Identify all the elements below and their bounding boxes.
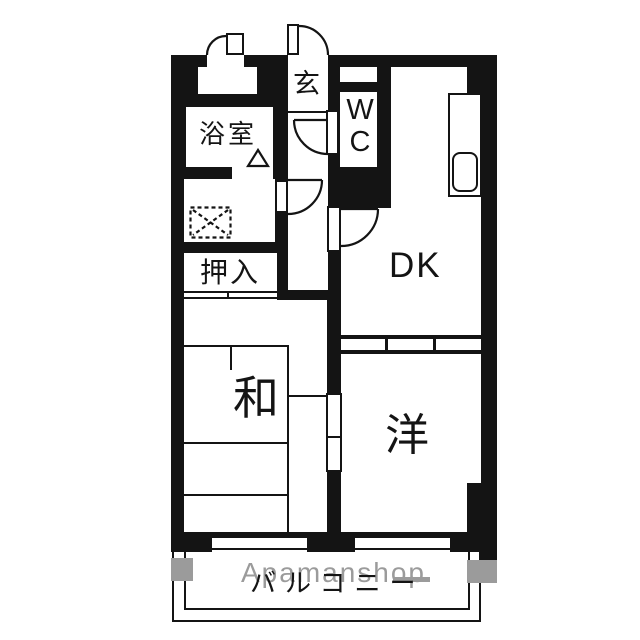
wall-top-right-corner	[467, 55, 497, 95]
room-washroom	[184, 179, 275, 242]
label-balcony: バルコニー	[250, 570, 424, 596]
tatami-line-h4	[289, 395, 327, 397]
sliding-partition-dk-western	[341, 335, 481, 354]
label-western-room: 洋	[385, 414, 429, 458]
label-dining-kitchen: DK	[389, 248, 442, 283]
sliding-partition-tick-2	[433, 335, 436, 354]
kitchen-sink	[452, 152, 478, 192]
wall-left-lower	[171, 300, 184, 552]
closet-fusuma-tick	[227, 291, 229, 299]
tatami-line-h3	[184, 494, 289, 496]
washroom-door-panel	[275, 180, 288, 213]
entrance-door-panel	[287, 24, 299, 55]
entrance-door-gap	[207, 55, 244, 67]
entrance-door-arc	[299, 26, 328, 55]
wc-window-slot	[340, 67, 377, 82]
service-door-arc	[207, 36, 226, 55]
closet-fusuma-line-2	[184, 297, 277, 299]
sliding-door-japanese-western	[326, 393, 342, 472]
label-japanese-room: 和	[233, 375, 279, 421]
label-bathroom: 浴室	[199, 121, 257, 147]
wall-right	[481, 55, 497, 560]
window-rail-western	[355, 548, 450, 550]
tatami-line-h2	[184, 442, 289, 444]
floorplan: 玄 浴室 押入 WC DK 和 洋 Apamanshop バルコニー	[0, 0, 640, 640]
balcony-divider-right	[467, 560, 497, 583]
bathroom-door-gap	[232, 167, 273, 179]
window-rail-japanese	[212, 548, 307, 550]
tatami-tick	[230, 347, 232, 370]
label-wc: WC	[343, 95, 377, 159]
sliding-door-divider	[328, 436, 340, 438]
tatami-line-v	[287, 345, 289, 532]
closet-fusuma-line-1	[184, 291, 277, 293]
tatami-line-h1	[184, 345, 289, 347]
wall-stub-bottom-right	[467, 483, 481, 552]
meter-box	[198, 67, 257, 94]
genkan-step-line	[288, 111, 328, 113]
dk-door-panel	[327, 206, 341, 252]
label-closet: 押入	[200, 259, 260, 287]
balcony-divider-left	[171, 558, 193, 581]
wc-door-panel	[326, 110, 339, 155]
dk-door-arc	[341, 209, 378, 246]
label-genkan: 玄	[293, 71, 320, 98]
sliding-partition-tick-1	[385, 335, 388, 354]
service-door-panel	[226, 33, 244, 55]
